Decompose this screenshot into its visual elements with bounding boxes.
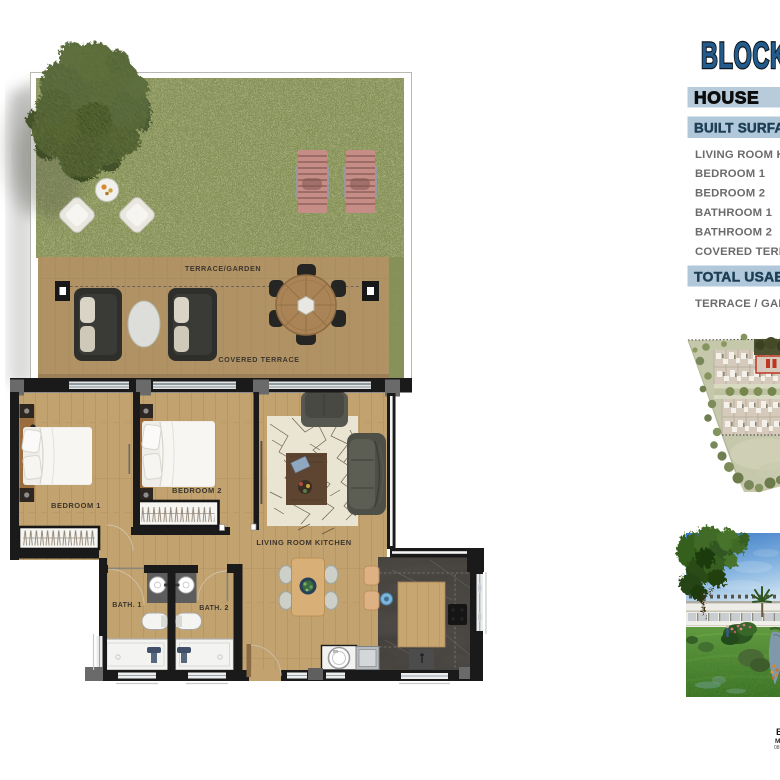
svg-text:TERRACE / GARDEN: TERRACE / GARDEN (695, 298, 780, 310)
svg-text:LIVING ROOM KITCHEN: LIVING ROOM KITCHEN (695, 149, 780, 161)
svg-text:BUILT SURFACE AREA: BUILT SURFACE AREA (694, 121, 780, 136)
svg-text:08: 08 (774, 745, 780, 751)
svg-text:BEDROOM 1: BEDROOM 1 (695, 168, 765, 180)
svg-text:HOUSE: HOUSE (694, 88, 759, 108)
svg-text:BLOCK 5: BLOCK 5 (701, 34, 780, 76)
svg-text:BEDROOM 2: BEDROOM 2 (172, 486, 222, 495)
svg-text:BM: BM (776, 727, 780, 738)
svg-text:MA: MA (775, 738, 780, 745)
svg-text:TERRACE/GARDEN: TERRACE/GARDEN (185, 264, 261, 273)
svg-text:BATHROOM 2: BATHROOM 2 (695, 227, 772, 239)
svg-text:BEDROOM 2: BEDROOM 2 (695, 188, 765, 200)
svg-text:BATH. 1: BATH. 1 (112, 602, 142, 609)
svg-text:BATHROOM 1: BATHROOM 1 (695, 207, 772, 219)
svg-text:COVERED TERRACE: COVERED TERRACE (218, 355, 299, 364)
svg-text:COVERED TERRACE: COVERED TERRACE (695, 246, 780, 258)
svg-text:LIVING ROOM KITCHEN: LIVING ROOM KITCHEN (256, 538, 351, 547)
svg-text:TOTAL USABLE: TOTAL USABLE (694, 269, 780, 285)
svg-text:BATH. 2: BATH. 2 (199, 605, 229, 612)
svg-text:BEDROOM 1: BEDROOM 1 (51, 501, 101, 510)
